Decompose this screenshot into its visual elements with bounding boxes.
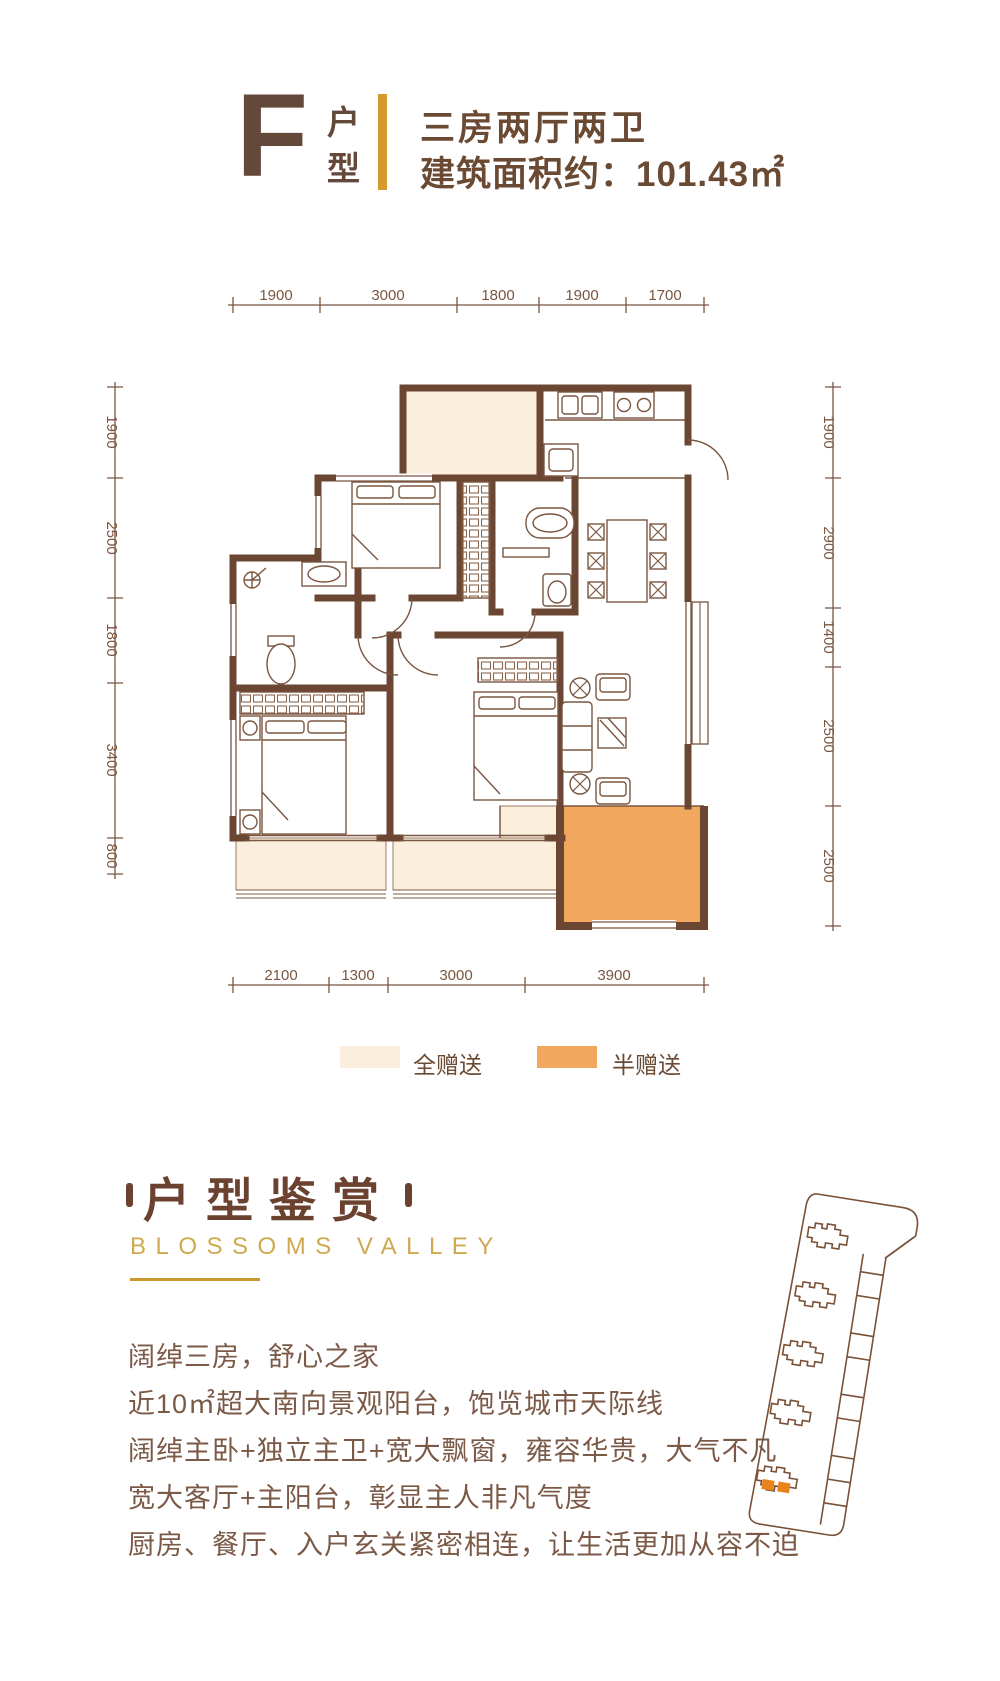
svg-text:2500: 2500 (820, 719, 837, 752)
feature-line: 厨房、餐厅、入户玄关紧密相连，让生活更加从容不迫 (128, 1522, 748, 1569)
svg-text:2500: 2500 (103, 521, 120, 554)
area-label: 建筑面积约： (420, 155, 636, 194)
unit-type-label: 户型 (327, 100, 365, 192)
sofa (562, 702, 592, 772)
svg-text:1800: 1800 (103, 623, 120, 656)
section-title: 户型鉴赏 (143, 1175, 395, 1227)
svg-text:1800: 1800 (481, 287, 514, 304)
svg-text:1900: 1900 (103, 415, 120, 448)
feature-line: 近10㎡超大南向景观阳台，饱览城市天际线 (128, 1381, 748, 1428)
legend-label-full-gift: 全赠送 (413, 1046, 482, 1080)
svg-text:3400: 3400 (103, 743, 120, 776)
svg-text:3000: 3000 (371, 287, 404, 304)
svg-text:2500: 2500 (820, 849, 837, 882)
bay-window-left-fill (236, 838, 386, 890)
section-title-row: 户型鉴赏 (126, 1175, 412, 1227)
legend-label-half-gift: 半赠送 (612, 1046, 681, 1080)
svg-text:2900: 2900 (820, 526, 837, 559)
feature-list: 阔绰三房，舒心之家 近10㎡超大南向景观阳台，饱览城市天际线 阔绰主卧+独立主卫… (128, 1334, 748, 1569)
legend-swatch-half-gift (537, 1046, 597, 1068)
feature-line: 阔绰主卧+独立主卫+宽大飘窗，雍容华贵，大气不凡 (128, 1428, 748, 1475)
subtitle-underline (130, 1278, 260, 1281)
svg-text:1900: 1900 (565, 287, 598, 304)
header-divider-bar (378, 94, 387, 190)
dining-table (607, 520, 647, 602)
svg-text:1700: 1700 (648, 287, 681, 304)
gift-room-fill (403, 389, 537, 476)
site-plan (730, 1185, 945, 1565)
site-buildings (755, 1219, 849, 1496)
unit-area-text: 建筑面积约：101.43㎡ (420, 146, 785, 197)
master-wardrobe (478, 658, 558, 682)
svg-text:1400: 1400 (820, 620, 837, 653)
bath-shelf (503, 548, 549, 557)
wardrobe-2 (462, 482, 490, 598)
svg-text:3900: 3900 (597, 967, 630, 984)
floorplan-poster: F 户型 三房两厅两卫 建筑面积约：101.43㎡ (0, 0, 1000, 1681)
floor-plan-drawing: 1900 3000 1800 1900 1700 2100 1300 3000 … (90, 270, 860, 1010)
bay-window-mid-fill (393, 838, 558, 890)
window-sills (236, 890, 558, 898)
half-gift-balcony-fill (562, 806, 704, 926)
svg-text:1300: 1300 (341, 967, 374, 984)
legend-swatch-full-gift (340, 1046, 400, 1068)
section-subtitle: BLOSSOMS VALLEY (130, 1233, 503, 1261)
feature-line: 宽大客厅+主阳台，彰显主人非凡气度 (128, 1475, 748, 1522)
svg-text:3000: 3000 (439, 967, 472, 984)
svg-text:1900: 1900 (820, 415, 837, 448)
quote-mark-left (126, 1183, 133, 1207)
svg-text:800: 800 (103, 843, 120, 868)
closet-3 (240, 692, 364, 714)
svg-text:1900: 1900 (259, 287, 292, 304)
feature-line: 阔绰三房，舒心之家 (128, 1334, 748, 1381)
area-value: 101.43㎡ (636, 155, 785, 194)
unit-type-letter: F (236, 86, 308, 186)
quote-mark-right (405, 1183, 412, 1207)
unit-rooms-text: 三房两厅两卫 (420, 100, 648, 151)
svg-text:2100: 2100 (264, 967, 297, 984)
toilet-2 (267, 644, 295, 684)
